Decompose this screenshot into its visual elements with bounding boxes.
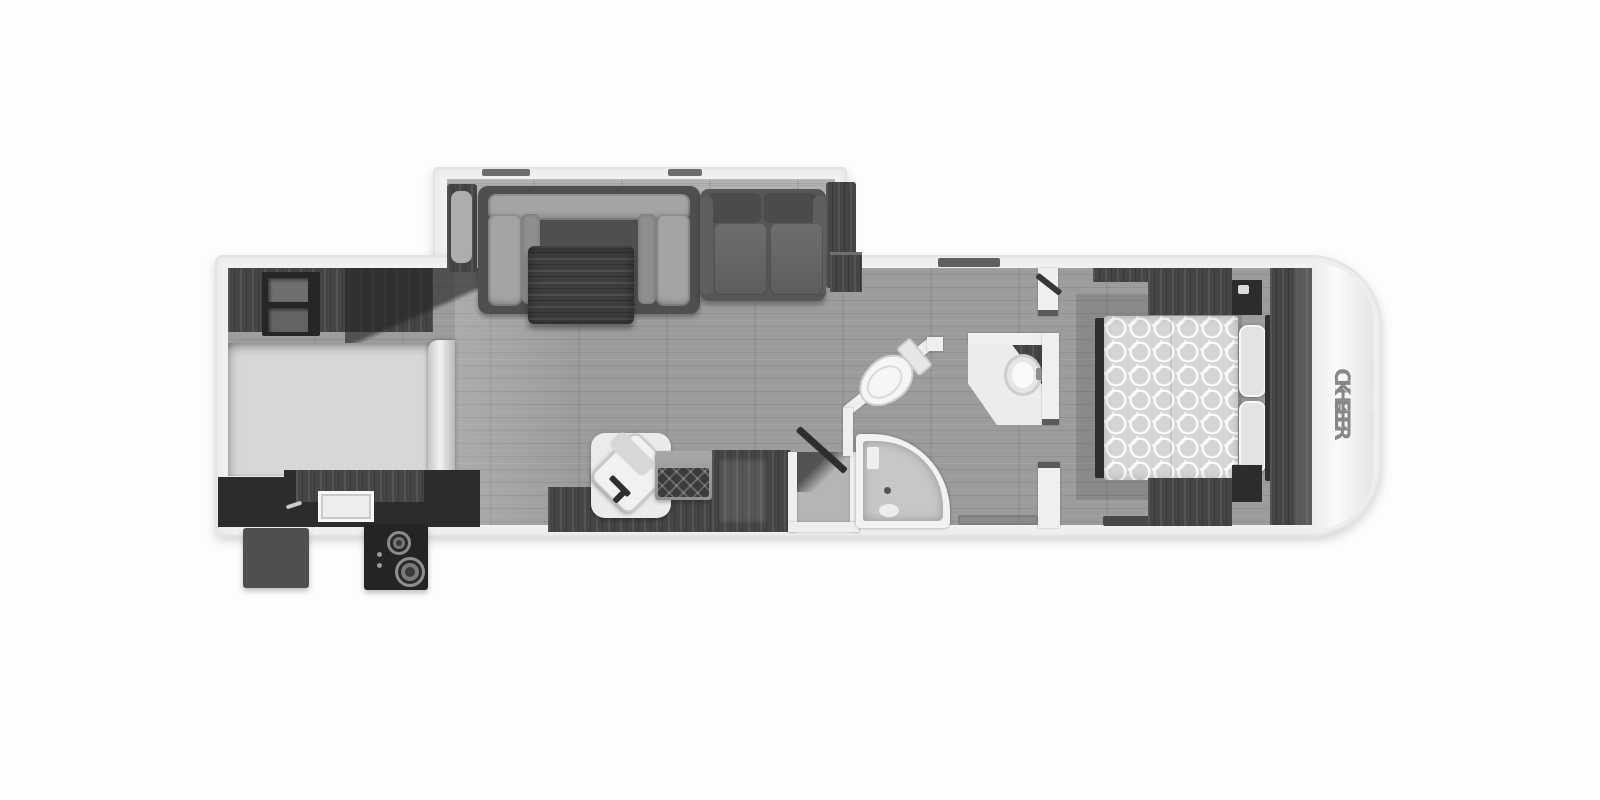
griddle-burner-small: [387, 531, 411, 555]
refrigerator: [218, 477, 296, 527]
kitchen-sink: [318, 491, 374, 522]
slide-window: [482, 169, 530, 176]
shower-drain: [884, 487, 891, 494]
nightstand-lamp: [1238, 285, 1249, 294]
slide-window: [668, 169, 702, 176]
cap-trim-mark: [1370, 360, 1374, 386]
vanity-wall-right: [1042, 333, 1059, 425]
dinette-table: [528, 246, 634, 324]
bedroom-wall-cap-bottom: [1038, 462, 1060, 468]
fireplace-front: [658, 468, 709, 497]
dinette-seat-right-cushionline: [638, 214, 656, 304]
dinette-end-cushion: [451, 191, 472, 263]
pantry-shelf-top: [268, 278, 308, 302]
window-top-bath: [938, 258, 1000, 267]
entertainment-center-step: [718, 458, 768, 524]
shower-head: [878, 503, 900, 518]
bedroom-wall-cap-top: [1038, 310, 1058, 316]
shower-caddy: [867, 447, 879, 469]
sofa-back-cushion: [709, 193, 761, 223]
corner-cabinet: [830, 252, 862, 292]
cherokee-logo: CHERKEE: [1328, 296, 1356, 516]
griddle-knob: [377, 552, 382, 557]
outside-storage-box: [243, 528, 309, 588]
cap-trim-mark: [1370, 412, 1374, 438]
bed-center-crease: [1170, 318, 1172, 478]
entry-wall-bottom: [788, 522, 859, 532]
entry-wall-left: [788, 452, 797, 532]
wardrobe-top: [1148, 268, 1232, 315]
wardrobe-bottom: [1148, 478, 1232, 526]
floorplan-image: CHERKEE: [0, 0, 1600, 800]
sofa-armrest: [700, 196, 713, 294]
dinette-seat-left: [488, 214, 522, 306]
sliding-door-threshold: [958, 515, 1038, 525]
dinette-seat-right: [656, 214, 690, 306]
griddle-burner-large: [395, 557, 425, 587]
pillow-bottom: [1239, 401, 1266, 473]
vanity-wall-top: [968, 333, 1044, 345]
bunk-platform: [228, 343, 428, 478]
sofa-seat-cushion: [770, 223, 823, 295]
front-closet-inner-step: [1296, 268, 1312, 525]
cherokee-logo-suffix: KEE: [1330, 379, 1354, 433]
nightstand-bottom: [1232, 465, 1262, 502]
griddle-knob: [377, 563, 382, 568]
bath-wall-stub-top: [927, 337, 943, 351]
bedroom-wall-stub-bottom: [1038, 462, 1060, 528]
sofa-back-cushion: [764, 193, 816, 223]
pantry-shelf-bottom: [268, 308, 308, 332]
sofa-seat-cushion: [714, 223, 767, 295]
vanity-wall-cap: [1042, 419, 1059, 425]
pillow-top: [1239, 325, 1266, 397]
bath-wall-stub-left: [843, 408, 853, 456]
